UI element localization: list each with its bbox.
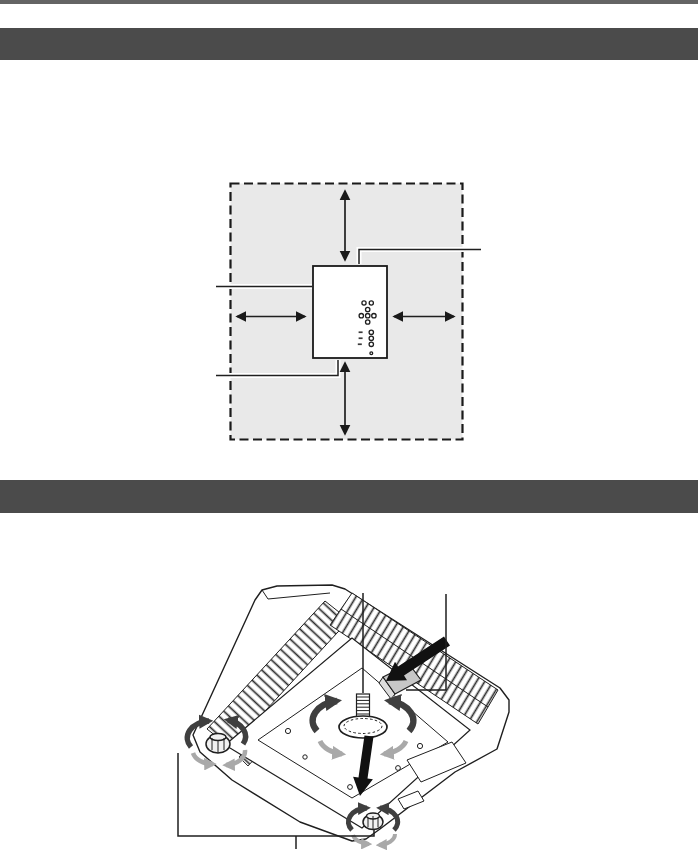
page-top-rule — [0, 0, 698, 4]
projector-top-view — [313, 266, 387, 358]
figure-clearance-diagram — [200, 175, 500, 455]
manual-page — [0, 0, 698, 857]
figure-adjustable-feet — [160, 575, 530, 857]
section-header-bar-1 — [0, 28, 698, 60]
section-header-bar-2 — [0, 480, 698, 513]
rear-adjustable-foot-left — [206, 734, 230, 754]
rear-adjustable-foot-right — [363, 813, 383, 830]
